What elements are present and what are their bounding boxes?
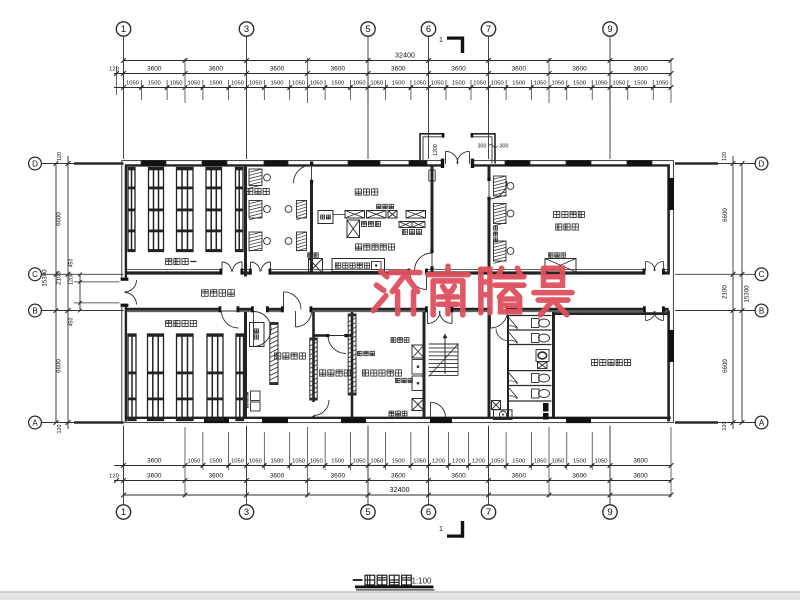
svg-text:120: 120 (109, 67, 119, 73)
svg-text:6: 6 (426, 507, 431, 518)
svg-text:C: C (759, 270, 765, 279)
svg-text:B: B (32, 306, 37, 315)
svg-text:1050: 1050 (656, 81, 669, 87)
svg-text:1050: 1050 (353, 459, 366, 465)
svg-text:120: 120 (109, 474, 119, 480)
svg-text:1050: 1050 (188, 81, 201, 87)
svg-text:1: 1 (121, 24, 126, 35)
svg-text:15300: 15300 (42, 269, 49, 287)
svg-text:6600: 6600 (56, 359, 63, 373)
svg-text:1050: 1050 (310, 459, 323, 465)
svg-text:D: D (759, 159, 765, 168)
svg-text:32400: 32400 (395, 51, 415, 60)
svg-text:32400: 32400 (390, 485, 410, 494)
svg-text:1050: 1050 (473, 81, 486, 87)
svg-text:3600: 3600 (147, 458, 162, 465)
svg-text:1500: 1500 (209, 81, 222, 87)
svg-text:1050: 1050 (413, 81, 426, 87)
svg-text:1050: 1050 (249, 459, 262, 465)
svg-text:1050: 1050 (551, 459, 564, 465)
svg-text:1500: 1500 (271, 459, 284, 465)
svg-text:D: D (32, 159, 38, 168)
svg-text:1050: 1050 (126, 81, 139, 87)
svg-text:1500: 1500 (512, 81, 525, 87)
svg-text:1500: 1500 (331, 459, 344, 465)
svg-text:3600: 3600 (331, 473, 346, 480)
svg-text:1:100: 1:100 (411, 577, 432, 586)
svg-text:1500: 1500 (209, 459, 222, 465)
svg-text:1050: 1050 (595, 459, 608, 465)
svg-text:1050: 1050 (231, 459, 244, 465)
svg-text:3600: 3600 (209, 473, 224, 480)
svg-text:1500: 1500 (271, 81, 284, 87)
svg-text:1500: 1500 (634, 81, 647, 87)
svg-text:1500: 1500 (512, 459, 525, 465)
svg-text:5: 5 (365, 507, 370, 518)
svg-text:3600: 3600 (512, 473, 527, 480)
svg-text:A: A (759, 418, 765, 427)
svg-text:3600: 3600 (270, 66, 285, 73)
svg-text:1050: 1050 (491, 81, 504, 87)
svg-text:120: 120 (57, 152, 63, 161)
svg-text:A: A (32, 418, 38, 427)
svg-text:300: 300 (500, 144, 509, 150)
svg-text:1050: 1050 (292, 459, 305, 465)
svg-text:1050: 1050 (413, 459, 426, 465)
svg-text:1: 1 (439, 526, 443, 533)
svg-text:3600: 3600 (633, 473, 648, 480)
svg-text:1050: 1050 (534, 81, 547, 87)
svg-text:1050: 1050 (551, 81, 564, 87)
svg-text:1500: 1500 (573, 81, 586, 87)
svg-text:1200: 1200 (69, 273, 75, 285)
svg-text:2100: 2100 (722, 285, 729, 299)
svg-text:6: 6 (426, 24, 431, 35)
svg-text:7: 7 (486, 24, 491, 35)
svg-text:1500: 1500 (392, 81, 405, 87)
svg-text:1050: 1050 (231, 81, 244, 87)
svg-text:1050: 1050 (612, 81, 625, 87)
svg-text:6600: 6600 (722, 359, 729, 373)
svg-text:3600: 3600 (147, 66, 162, 73)
svg-text:1050: 1050 (595, 81, 608, 87)
svg-text:1200: 1200 (433, 144, 439, 156)
svg-text:1050: 1050 (188, 459, 201, 465)
svg-text:1050: 1050 (431, 81, 444, 87)
svg-text:1050: 1050 (370, 81, 383, 87)
svg-text:1050: 1050 (170, 81, 183, 87)
svg-text:3600: 3600 (451, 473, 466, 480)
svg-text:6600: 6600 (722, 208, 729, 222)
svg-text:3600: 3600 (451, 66, 466, 73)
svg-text:6600: 6600 (56, 212, 63, 226)
svg-text:1050: 1050 (353, 81, 366, 87)
svg-text:7: 7 (486, 507, 491, 518)
svg-text:1500: 1500 (331, 81, 344, 87)
svg-text:450: 450 (69, 318, 75, 327)
svg-text:1050: 1050 (310, 81, 323, 87)
svg-text:1500: 1500 (392, 459, 405, 465)
svg-text:3600: 3600 (391, 66, 406, 73)
svg-text:1050: 1050 (491, 459, 504, 465)
svg-text:3600: 3600 (270, 473, 285, 480)
svg-text:9: 9 (607, 507, 612, 518)
svg-text:1200: 1200 (452, 459, 465, 465)
svg-text:1200: 1200 (472, 459, 485, 465)
svg-text:3: 3 (244, 507, 249, 518)
svg-text:120: 120 (722, 152, 728, 161)
svg-text:1050: 1050 (370, 459, 383, 465)
svg-text:1: 1 (439, 37, 443, 44)
svg-text:3600: 3600 (512, 66, 527, 73)
svg-text:15300: 15300 (744, 285, 751, 303)
svg-text:3600: 3600 (331, 66, 346, 73)
svg-text:3600: 3600 (572, 473, 587, 480)
svg-text:3600: 3600 (572, 66, 587, 73)
svg-text:5: 5 (365, 24, 370, 35)
svg-text:1500: 1500 (452, 81, 465, 87)
svg-text:B: B (759, 306, 764, 315)
svg-text:1200: 1200 (432, 459, 445, 465)
svg-text:3600: 3600 (633, 66, 648, 73)
svg-text:3600: 3600 (209, 66, 224, 73)
svg-text:1050: 1050 (534, 459, 547, 465)
svg-text:300: 300 (478, 144, 487, 150)
svg-text:C: C (32, 270, 38, 279)
svg-text:450: 450 (69, 259, 75, 268)
svg-text:1050: 1050 (292, 81, 305, 87)
svg-text:1500: 1500 (573, 459, 586, 465)
svg-text:2100: 2100 (56, 271, 63, 285)
svg-text:3600: 3600 (147, 473, 162, 480)
svg-text:120: 120 (57, 425, 63, 434)
svg-text:1500: 1500 (148, 81, 161, 87)
svg-text:9: 9 (607, 24, 612, 35)
svg-text:3: 3 (244, 24, 249, 35)
svg-text:3600: 3600 (391, 473, 406, 480)
svg-text:1050: 1050 (249, 81, 262, 87)
svg-text:3600: 3600 (633, 458, 648, 465)
svg-text:1: 1 (121, 507, 126, 518)
